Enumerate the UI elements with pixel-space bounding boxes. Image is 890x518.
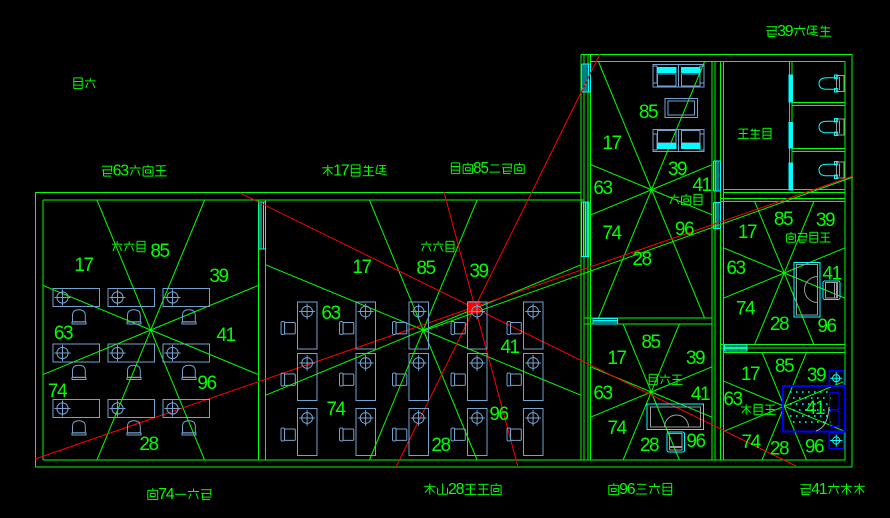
svg-text:39: 39: [209, 266, 228, 287]
svg-text:8: 8: [456, 481, 465, 498]
svg-text:74: 74: [48, 381, 68, 402]
svg-text:63: 63: [593, 383, 612, 404]
svg-text:41: 41: [691, 384, 710, 405]
svg-text:85: 85: [150, 241, 169, 262]
svg-text:85: 85: [774, 209, 793, 230]
svg-text:28: 28: [632, 249, 651, 270]
svg-text:96: 96: [675, 219, 694, 240]
svg-text:96: 96: [197, 373, 216, 394]
svg-text:96: 96: [817, 316, 836, 337]
svg-text:39: 39: [668, 159, 687, 180]
svg-text:6: 6: [627, 481, 636, 498]
svg-text:28: 28: [770, 314, 789, 335]
svg-text:39: 39: [807, 365, 826, 386]
svg-text:63: 63: [593, 178, 612, 199]
svg-text:63: 63: [54, 323, 73, 344]
svg-text:3: 3: [120, 163, 129, 180]
svg-text:96: 96: [805, 436, 824, 457]
svg-text:96: 96: [686, 431, 705, 452]
svg-text:85: 85: [641, 332, 660, 353]
svg-text:39: 39: [816, 210, 835, 231]
svg-text:17: 17: [602, 133, 621, 154]
svg-text:17: 17: [352, 257, 371, 278]
svg-text:39: 39: [686, 348, 705, 369]
svg-text:63: 63: [723, 389, 742, 410]
svg-text:41: 41: [500, 337, 519, 358]
svg-text:7: 7: [341, 163, 350, 180]
svg-text:9: 9: [785, 23, 794, 40]
svg-text:74: 74: [607, 418, 627, 439]
svg-text:17: 17: [741, 364, 760, 385]
svg-text:74: 74: [736, 298, 756, 319]
svg-text:63: 63: [321, 303, 340, 324]
svg-text:17: 17: [607, 348, 626, 369]
svg-text:5: 5: [480, 160, 489, 177]
svg-text:28: 28: [640, 435, 659, 456]
svg-text:28: 28: [139, 434, 158, 455]
svg-text:85: 85: [639, 102, 658, 123]
svg-text:41: 41: [692, 175, 711, 196]
svg-text:74: 74: [741, 432, 761, 453]
svg-text:28: 28: [770, 438, 789, 459]
svg-text:1: 1: [819, 481, 828, 498]
svg-text:4: 4: [166, 486, 175, 503]
svg-text:74: 74: [326, 399, 346, 420]
svg-text:96: 96: [489, 404, 508, 425]
svg-text:74: 74: [602, 223, 622, 244]
svg-text:85: 85: [775, 356, 794, 377]
svg-text:39: 39: [469, 261, 488, 282]
svg-text:28: 28: [431, 435, 450, 456]
svg-text:85: 85: [416, 258, 435, 279]
svg-text:17: 17: [738, 222, 757, 243]
svg-text:63: 63: [726, 258, 745, 279]
svg-text:17: 17: [74, 255, 93, 276]
svg-text:41: 41: [216, 325, 235, 346]
